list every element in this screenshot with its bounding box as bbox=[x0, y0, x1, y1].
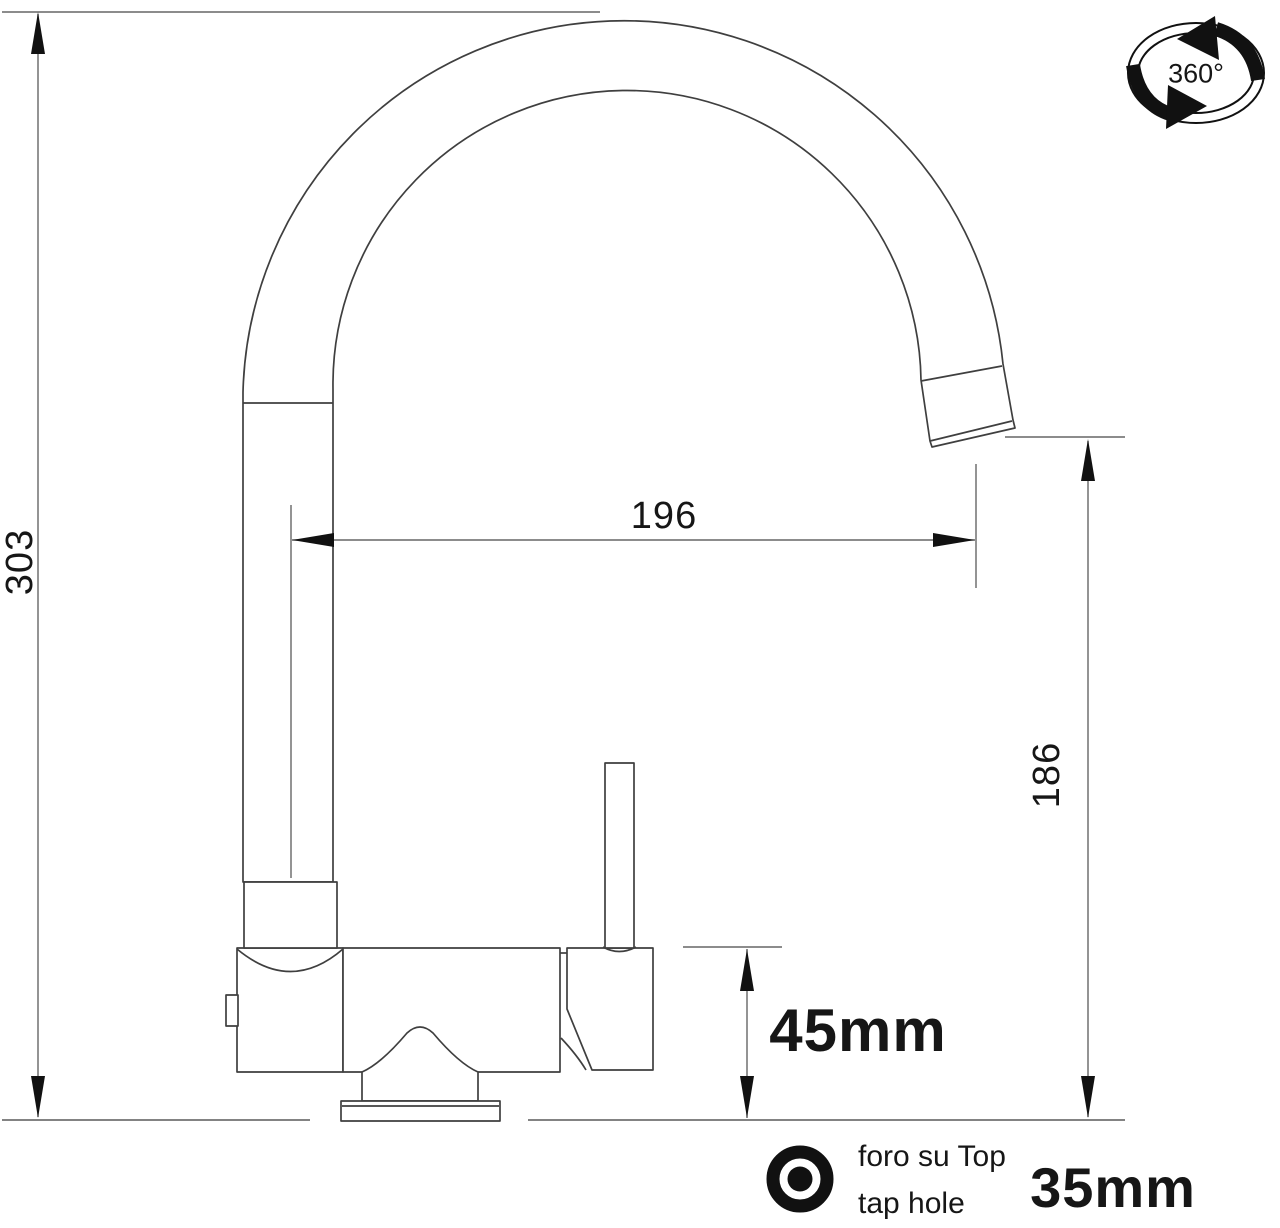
dim303-arrow-up bbox=[31, 12, 45, 54]
drawing-canvas bbox=[0, 0, 1280, 1228]
dim196-arrow-right bbox=[933, 533, 975, 547]
tap-hole-icon bbox=[773, 1152, 827, 1206]
base-plate bbox=[341, 1101, 500, 1121]
side-button bbox=[226, 995, 238, 1026]
dim303-arrow-down bbox=[31, 1076, 45, 1118]
rear-body-block bbox=[237, 948, 343, 1072]
tap-hole-note-italian: foro su Top bbox=[858, 1142, 1006, 1172]
dim-hole-diameter-label: 35mm bbox=[1030, 1160, 1196, 1216]
handle-stem bbox=[605, 763, 634, 948]
dim186-arrow-up bbox=[1081, 439, 1095, 481]
spout-outline bbox=[243, 21, 1015, 882]
dim-body-height-label: 45mm bbox=[769, 1001, 946, 1061]
dim-reach-label: 196 bbox=[631, 497, 697, 535]
rotation-degrees-label: 360° bbox=[1168, 61, 1224, 88]
tap-hole-note-english: tap hole bbox=[858, 1189, 965, 1219]
dim186-arrow-down bbox=[1081, 1076, 1095, 1118]
dim-outlet-height-label: 186 bbox=[1028, 742, 1066, 808]
dim45-arrow-down bbox=[740, 1076, 754, 1118]
dim45-arrow-up bbox=[740, 949, 754, 991]
dim-total-height-label: 303 bbox=[1, 529, 39, 595]
pipe-collar bbox=[244, 882, 337, 948]
handle-block bbox=[567, 948, 653, 1070]
faucet-spout bbox=[243, 21, 1015, 882]
dimension-45mm bbox=[683, 947, 782, 1118]
faucet-technical-drawing: 303 196 186 45mm 35mm 360° foro su Top t… bbox=[0, 0, 1280, 1228]
